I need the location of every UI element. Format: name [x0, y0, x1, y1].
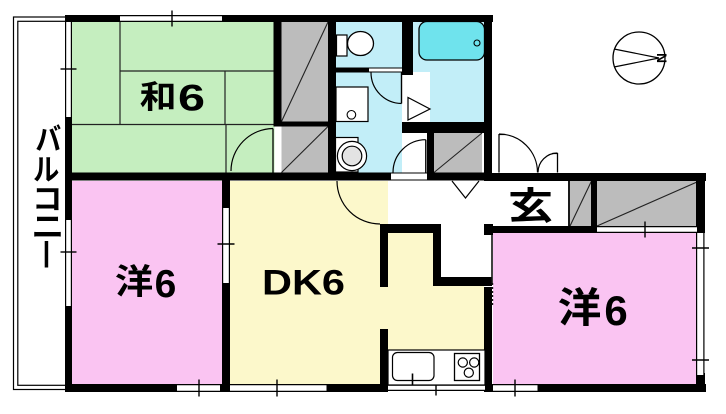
svg-text:DK6: DK6: [262, 264, 345, 303]
svg-text:6: 6: [604, 287, 627, 334]
svg-text:N: N: [654, 53, 670, 63]
svg-text:6: 6: [155, 263, 177, 306]
svg-text:6: 6: [178, 78, 205, 119]
